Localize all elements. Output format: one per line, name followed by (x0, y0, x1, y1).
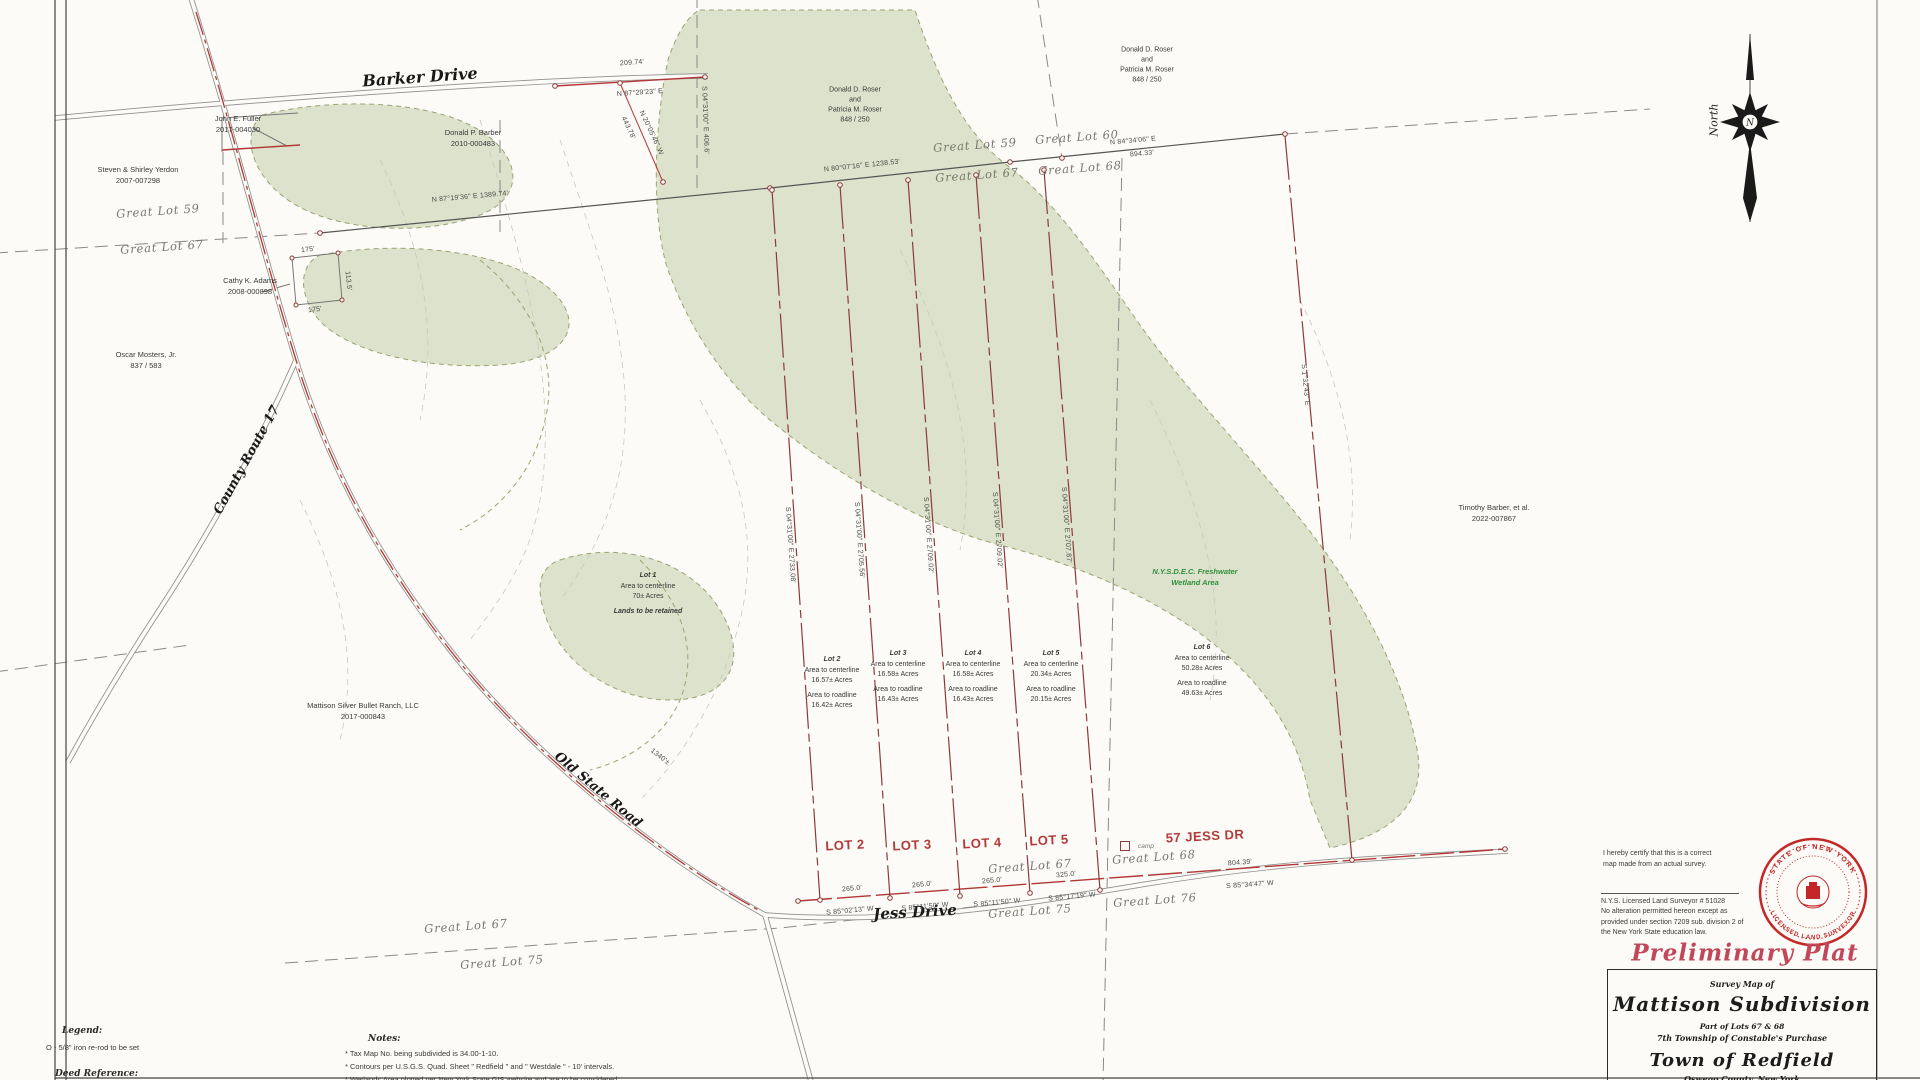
red-lot-label: LOT 2 (825, 836, 865, 853)
legend-deed-reference: Deed Reference: (55, 1069, 138, 1079)
lot-area-lot4: Lot 4 Area to centerline16.58± Acres Are… (946, 649, 1001, 706)
title-township: 7th Township of Constable's Purchase (1608, 1033, 1876, 1043)
title-county: Oswego County, New York (1608, 1074, 1876, 1080)
red-lot-label: LOT 3 (892, 836, 932, 853)
notes-item: * Contours per U.S.G.S. Quad. Sheet " Re… (345, 1062, 614, 1071)
north-arrow-label: North (1708, 103, 1721, 136)
surveyor-signature-line (1601, 893, 1739, 894)
notes-heading: Notes: (368, 1034, 401, 1044)
preliminary-plat-title: Preliminary Plat (1631, 940, 1858, 967)
owner-label-mosters: Oscar Mosters, Jr.837 / 583 (116, 350, 177, 372)
lot-area-lot1: Lot 1 Area to centerline 70± Acres Lands… (614, 571, 682, 617)
owner-label-roser-east: Donald D. Roserand Patricia M. Roser848 … (1120, 46, 1174, 87)
owner-label-fuller: John E. Fuller2017-004030 (215, 114, 261, 136)
camp-label: camp (1138, 843, 1154, 850)
lot-area-lot2: Lot 2 Area to centerline16.57± Acres Are… (805, 655, 860, 712)
red-lot-label: LOT 4 (962, 834, 1002, 851)
north-arrow: N (1720, 34, 1780, 222)
wetland-note: N.Y.S.D.E.C. Freshwater Wetland Area (1152, 566, 1237, 589)
surveyor-seal: STATE OF NEW YORK LICENSED LAND SURVEYOR (1760, 839, 1866, 945)
owner-label-barber: Donald P. Barber2010-000483 (445, 128, 502, 150)
title-town: Town of Redfield (1608, 1050, 1876, 1071)
owner-label-timothy-barber: Timothy Barber, et al.2022-007867 (1458, 503, 1529, 525)
owner-label-mattison-ranch: Mattison Silver Bullet Ranch, LLC2017-00… (307, 701, 419, 723)
camp-symbol (1120, 841, 1130, 851)
plat-sheet: N STATE OF NEW YORK LICENSED LAND SURVEY… (0, 0, 1920, 1080)
surveyor-license-line: N.Y.S. Licensed Land Surveyor # 51028 (1601, 897, 1761, 908)
title-part-of-lots: Part of Lots 67 & 68 (1608, 1022, 1876, 1031)
bearing-label: 175' (301, 246, 315, 254)
wetland-areas (251, 10, 1419, 848)
legend-iron-rod-item: O - 5/8" iron re-rod to be set (46, 1043, 139, 1052)
alteration-note: No alteration permitted hereon except as… (1601, 907, 1753, 939)
title-survey-map-of: Survey Map of (1608, 979, 1876, 989)
lot-area-lot3: Lot 3 Area to centerline16.58± Acres Are… (871, 649, 926, 706)
notes-item: * Tax Map No. being subdivided is 34.00-… (345, 1049, 498, 1058)
owner-label-roser-center: Donald D. Roserand Patricia M. Roser848 … (828, 86, 882, 127)
certification-statement: I hereby certify that this is a correct … (1603, 849, 1715, 870)
title-subdivision-name: Mattison Subdivision (1608, 992, 1876, 1016)
north-letter: N (1745, 119, 1755, 129)
legend-heading: Legend: (62, 1026, 102, 1036)
owner-label-yerdon: Steven & Shirley Yerdon2007-007298 (98, 165, 179, 187)
bearing-label: 175' (308, 306, 322, 314)
red-lot-label: LOT 5 (1029, 831, 1069, 848)
lot-area-lot6: Lot 6 Area to centerline50.28± Acres Are… (1175, 643, 1230, 700)
lot-area-lot5: Lot 5 Area to centerline20.34± Acres Are… (1024, 649, 1079, 706)
title-block: Survey Map of Mattison Subdivision Part … (1607, 969, 1877, 1080)
notes-item: * Wetlands Area plotted per New York Sta… (345, 1075, 617, 1080)
owner-label-adams: Cathy K. Adams2008-000898 (223, 276, 277, 298)
